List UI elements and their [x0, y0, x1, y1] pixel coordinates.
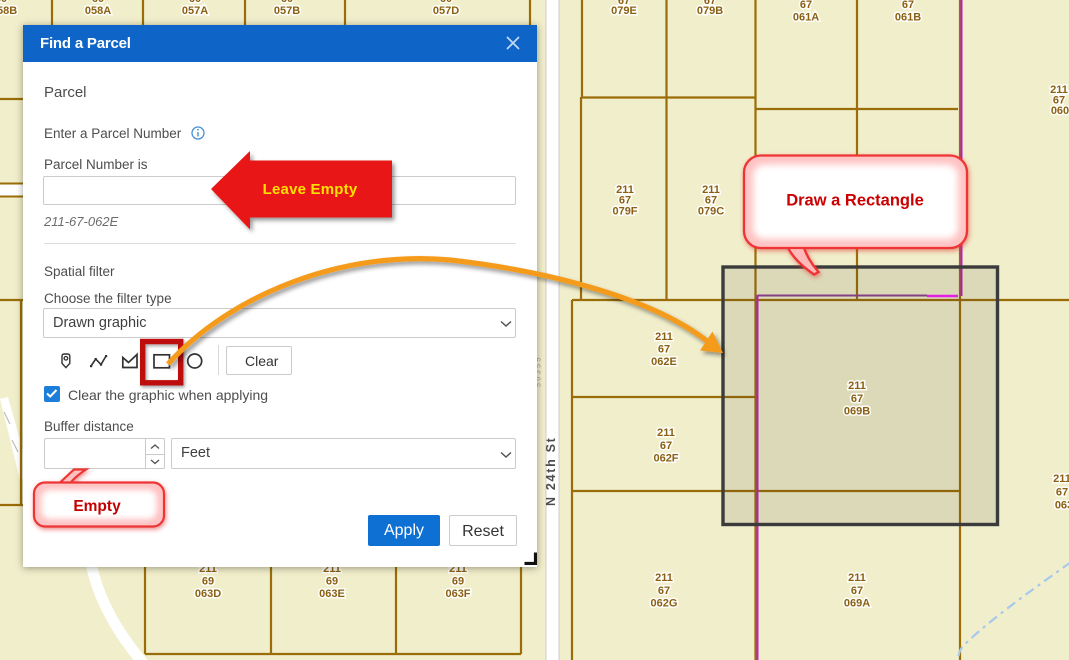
svg-text:Empty: Empty: [73, 498, 121, 515]
svg-text:Draw a Rectangle: Draw a Rectangle: [786, 192, 924, 210]
svg-text:Leave Empty: Leave Empty: [263, 181, 358, 198]
